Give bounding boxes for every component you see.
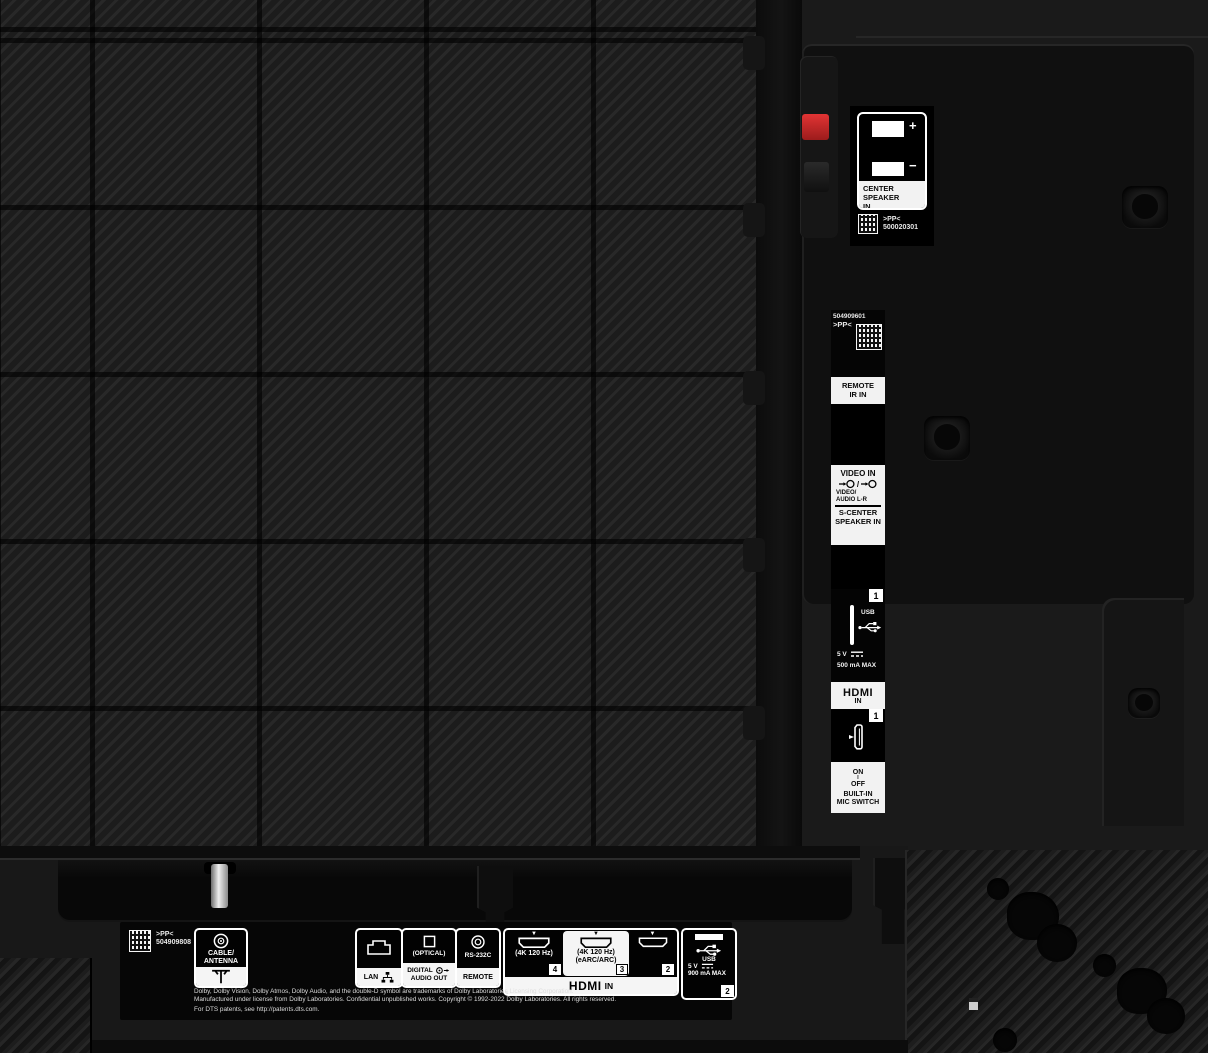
digital-audio-out-strip: DIGITAL AUDIO OUT [403, 963, 455, 986]
legal-line: Manufactured under license from Dolby La… [194, 996, 654, 1004]
dc-symbol-icon [701, 963, 714, 970]
usb-port-section: 1 USB 5 V 500 mA MAX [831, 589, 885, 682]
usb-current: 900 mA MAX [683, 970, 726, 977]
usb-trident-icon [696, 942, 722, 956]
rs232c-jack-icon [470, 934, 486, 950]
usb-voltage: 5 V [683, 963, 714, 970]
rs232c-label: RS-232C [465, 952, 492, 959]
audio-out-icon [435, 966, 451, 975]
usb-port-slot [850, 605, 854, 645]
remote-strip: REMOTE [457, 968, 499, 986]
s-center-speaker-label: S-CENTER SPEAKER IN [835, 509, 881, 526]
edge-tab [743, 203, 765, 237]
speaker-slot-minus [872, 162, 904, 176]
tv-back-panel: + − CENTER SPEAKER IN >PP< 500020301 504… [0, 0, 1208, 1053]
shelf-seam [0, 846, 860, 860]
screw [1128, 688, 1160, 718]
video-in-label: VIDEO IN / VIDEO/ AUDIO L-R S-CENTER SPE… [831, 465, 885, 545]
video-in-title: VIDEO IN [840, 469, 875, 478]
lan-box: LAN [355, 928, 403, 988]
mic-switch-label: ON I OFF BUILT-IN MIC SWITCH [831, 762, 885, 813]
coax-connector-pin [211, 864, 228, 908]
usb-slot [695, 934, 723, 940]
connector-recess-bar [58, 860, 852, 922]
usb-box: USB 5 V 900 mA MAX 2 [681, 928, 737, 1000]
speaker-terminal-red-clip [802, 114, 829, 140]
optical-box: (OPTICAL) DIGITAL AUDIO OUT [401, 928, 457, 988]
legal-text: Dolby, Dolby Vision, Dolby Atmos, Dolby … [194, 988, 654, 1014]
legal-line: Dolby, Dolby Vision, Dolby Atmos, Dolby … [194, 988, 654, 996]
lan-strip: LAN [357, 968, 401, 986]
ethernet-port-icon [366, 937, 392, 957]
dc-symbol-icon [850, 651, 864, 658]
remote-ir-port-recess [831, 404, 885, 465]
rs232c-box: RS-232C REMOTE [455, 928, 501, 988]
usb-current: 500 mA MAX [837, 662, 876, 669]
video-audio-sub: VIDEO/ AUDIO L-R [831, 490, 867, 503]
hdmi2-badge: 2 [662, 964, 674, 975]
speaker-label-strip: CENTER SPEAKER IN [859, 181, 925, 208]
mount-hole [987, 878, 1009, 900]
screw [924, 416, 970, 460]
hdmi-port-3: ▼ (4K 120 Hz) (eARC/ARC) 3 [563, 931, 629, 976]
mount-hole [1093, 954, 1116, 977]
mount-keyhole [1037, 924, 1077, 962]
antenna-strip [196, 967, 246, 986]
ribbed-panel [905, 850, 1208, 1053]
hdmi-port-2: ▼ 2 [631, 931, 674, 975]
hdmi4-badge: 4 [549, 964, 561, 975]
speaker-pp-code: >PP< 500020301 [883, 216, 918, 232]
lan-network-icon [381, 972, 394, 983]
mount-hole [993, 1028, 1017, 1052]
remote-ir-label: REMOTE IR IN [831, 377, 885, 404]
cable-antenna-box: CABLE/ ANTENNA [194, 928, 248, 988]
hdmi-in-label: HDMI IN [831, 682, 885, 709]
hdmi3-badge: 3 [616, 964, 628, 975]
speaker-terminal-bracket [800, 56, 838, 238]
panel-clip-mark [969, 998, 978, 1010]
optical-port-icon [423, 935, 436, 948]
usb-label: USB [702, 956, 716, 963]
bottom-edge [92, 1040, 908, 1053]
hdmi-connector-icon [517, 937, 551, 949]
coax-jack-icon [212, 932, 230, 950]
usb-port-label: USB [861, 609, 875, 616]
center-speaker-label: + − CENTER SPEAKER IN [857, 112, 927, 210]
ribbed-corner [0, 958, 92, 1053]
tile-grid-panel [0, 0, 762, 846]
hdmi-port-4: ▼ (4K 120 Hz) 4 [507, 931, 561, 975]
port-gap [831, 545, 885, 589]
edge-tab [743, 371, 765, 405]
top-seam [856, 36, 1208, 38]
minus-sign: − [909, 158, 917, 173]
usb-voltage: 5 V [837, 651, 864, 658]
qr-code [856, 324, 882, 350]
qr-code [129, 930, 151, 952]
hdmi-connector-icon [579, 937, 613, 949]
mount-keyhole [1147, 998, 1185, 1034]
hdmi-connector-icon [847, 723, 865, 751]
hdmi-port-badge: 1 [869, 709, 883, 722]
edge-tab [743, 706, 765, 740]
video-jack-icon [839, 479, 855, 489]
speaker-terminal-black-clip [804, 162, 829, 192]
divider-line [835, 505, 881, 507]
port-column-serial: 504909601 >PP< [831, 310, 885, 377]
qr-code [858, 214, 878, 234]
video-jack-icon [861, 479, 877, 489]
screw [1122, 186, 1168, 228]
usb-port-badge: 1 [869, 589, 883, 602]
bottom-label-strip: >PP< 504909808 CABLE/ ANTENNA [120, 922, 732, 1020]
hdmi-port-section: 1 [831, 709, 885, 762]
video-jack-row: / [839, 479, 877, 489]
cable-antenna-label: CABLE/ ANTENNA [204, 950, 238, 965]
hdmi-group-box: ▼ (4K 120 Hz) 4 ▼ (4K 120 Hz) (eARC/ARC)… [503, 928, 679, 996]
optical-jack-label: (OPTICAL) [413, 950, 446, 957]
plus-sign: + [909, 118, 917, 133]
legal-line: For DTS patents, see http://patents.dts.… [194, 1006, 654, 1014]
port-column: 504909601 >PP< REMOTE IR IN VIDEO IN / V… [831, 310, 885, 813]
usb-trident-icon [858, 619, 882, 633]
speaker-slot-plus [872, 121, 904, 137]
edge-tab [743, 538, 765, 572]
hdmi-connector-icon [637, 937, 669, 948]
center-speaker-label-plate: + − CENTER SPEAKER IN >PP< 500020301 [850, 106, 934, 246]
edge-tab [743, 36, 765, 70]
antenna-icon [209, 969, 233, 985]
usb-badge: 2 [721, 985, 734, 997]
strip-pp-serial: >PP< 504909808 [156, 931, 191, 947]
